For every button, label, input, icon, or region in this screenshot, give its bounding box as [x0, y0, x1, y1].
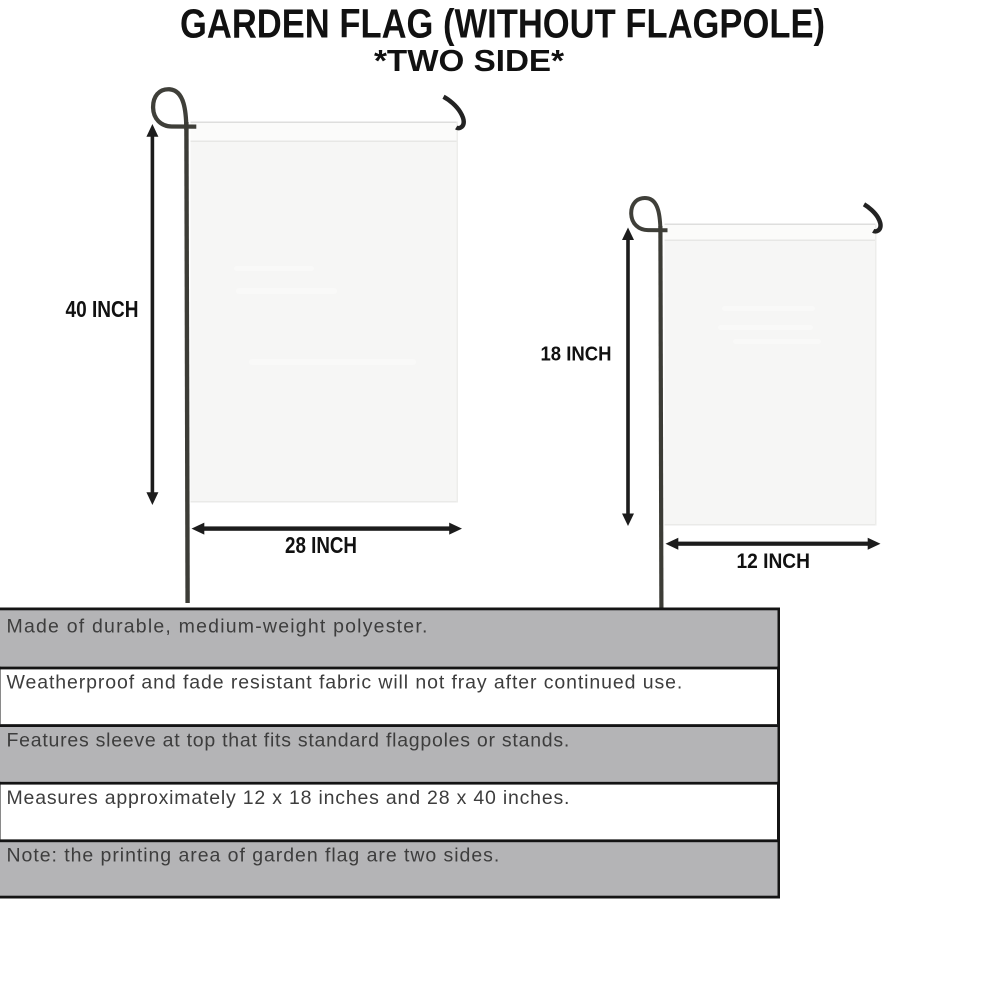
- svg-text:GARDEN FLAG (WITHOUT FLAGPOLE): GARDEN FLAG (WITHOUT FLAGPOLE): [180, 1, 825, 47]
- svg-text:Features sleeve at top that fi: Features sleeve at top that fits standar…: [7, 729, 571, 751]
- svg-text:12 INCH: 12 INCH: [737, 549, 811, 573]
- svg-text:18 INCH: 18 INCH: [541, 343, 612, 366]
- svg-text:40 INCH: 40 INCH: [66, 296, 139, 322]
- svg-text:*TWO SIDE*: *TWO SIDE*: [374, 43, 565, 78]
- svg-text:Weatherproof and fade resistan: Weatherproof and fade resistant fabric w…: [7, 672, 684, 694]
- svg-text:28 INCH: 28 INCH: [285, 532, 357, 558]
- svg-text:Measures approximately 12 x 18: Measures approximately 12 x 18 inches an…: [7, 787, 571, 809]
- svg-text:Made of durable, medium-weight: Made of durable, medium-weight polyester…: [7, 615, 429, 637]
- svg-text:Note: the printing area of gar: Note: the printing area of garden flag a…: [7, 845, 501, 867]
